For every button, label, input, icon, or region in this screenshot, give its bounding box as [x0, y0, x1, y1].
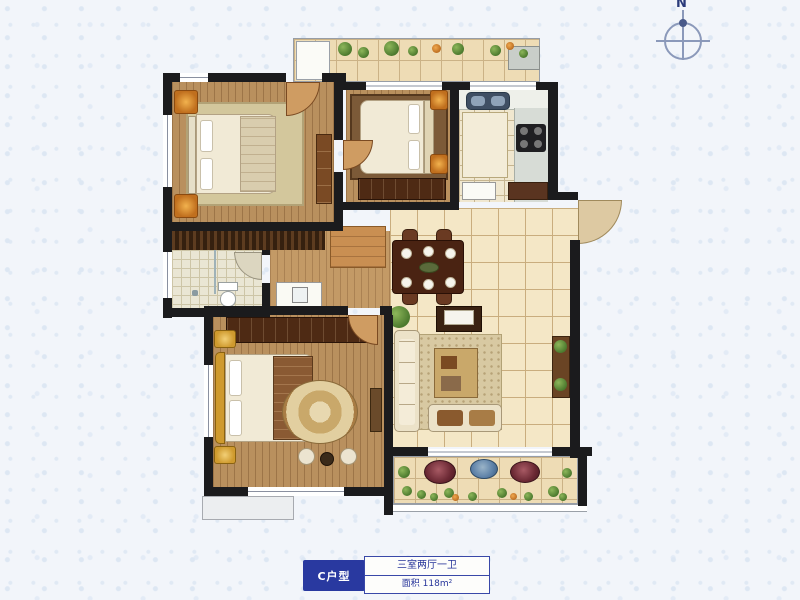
shower-screen: [214, 250, 216, 294]
sofa-pillow: [437, 410, 463, 426]
wall-segment: [204, 487, 248, 496]
wall-segment: [322, 73, 346, 82]
closet: [172, 231, 325, 250]
unit-area-text: 面积 118m²: [365, 576, 489, 593]
nightstand: [430, 154, 448, 174]
burner: [534, 127, 542, 135]
sofa-pillow: [469, 410, 495, 426]
nightstand: [174, 194, 198, 218]
tv-screen: [444, 310, 474, 325]
plant: [497, 488, 507, 498]
wall-segment: [548, 192, 578, 200]
window: [248, 487, 344, 496]
pillow: [408, 140, 420, 170]
window: [204, 365, 213, 437]
nightstand: [214, 446, 236, 464]
wardrobe: [316, 134, 332, 204]
plant: [562, 468, 572, 478]
hall-cabinet: [330, 226, 386, 268]
plant: [452, 43, 464, 55]
pillow: [229, 360, 242, 396]
wall-segment: [450, 82, 459, 210]
toilet-tank: [218, 282, 238, 291]
plant: [554, 340, 567, 353]
compass-north-label: N: [676, 0, 692, 12]
wall-segment: [204, 306, 348, 315]
nightstand: [174, 90, 198, 114]
blanket: [240, 116, 276, 192]
round-rug: [282, 380, 358, 444]
wardrobe: [358, 178, 446, 200]
ac-platform: [202, 496, 294, 520]
flower-pot: [510, 461, 540, 483]
kitchen-island: [462, 112, 508, 178]
flower: [452, 494, 459, 501]
compass-crosshair: [656, 40, 710, 42]
wall-segment: [334, 82, 343, 140]
plant: [402, 486, 412, 496]
flower: [506, 42, 514, 50]
compass-dot: [679, 19, 687, 27]
burner: [520, 127, 528, 135]
wall-segment: [163, 222, 340, 231]
flower-pot: [424, 460, 456, 484]
flower: [432, 44, 441, 53]
leisure-chair: [340, 448, 357, 465]
plant: [408, 46, 418, 56]
wall-segment: [163, 187, 172, 252]
dresser: [370, 388, 382, 432]
unit-type-label: C户型: [317, 568, 350, 584]
pillow: [229, 400, 242, 436]
sofa: [394, 330, 420, 432]
floor-drain: [192, 290, 198, 296]
plant: [490, 45, 501, 56]
plant: [384, 41, 399, 56]
tea-table: [320, 452, 334, 466]
flower-pot: [470, 459, 498, 479]
nightstand: [430, 90, 448, 110]
window: [163, 115, 172, 187]
wall-segment: [262, 283, 270, 308]
wall-segment: [341, 82, 366, 90]
wall-segment: [208, 73, 286, 82]
wall-segment: [578, 456, 587, 506]
loveseat: [428, 404, 502, 432]
wall-segment: [388, 447, 428, 456]
plant: [338, 42, 352, 56]
plant: [430, 493, 438, 501]
fridge: [462, 182, 496, 200]
pillow: [408, 104, 420, 134]
unit-layout-text: 三室两厅一卫: [365, 557, 489, 576]
burner: [534, 140, 542, 148]
window: [366, 82, 442, 90]
window: [163, 252, 172, 298]
shoe-cabinet: [508, 182, 548, 200]
table-item: [441, 376, 461, 391]
plant: [417, 490, 426, 499]
plant: [524, 492, 533, 501]
flower: [510, 493, 517, 500]
table-item: [441, 356, 457, 369]
pillow: [200, 120, 213, 152]
plant: [468, 492, 477, 501]
wall-segment: [380, 306, 392, 315]
wall-segment: [334, 202, 459, 210]
plant: [554, 378, 567, 391]
wall-segment: [384, 315, 393, 515]
plant: [559, 493, 567, 501]
balcony-railing: [388, 504, 587, 512]
window: [428, 449, 552, 455]
plant: [398, 466, 410, 478]
wall-segment: [570, 240, 580, 458]
wall-segment: [552, 447, 592, 456]
plant: [358, 47, 369, 58]
wall-segment: [204, 306, 213, 365]
unit-type-badge: C户型: [303, 560, 365, 591]
wall-segment: [548, 82, 558, 196]
floorplan-image: N C户型 三室两厅一卫 面积 118m²: [0, 0, 800, 600]
bed-headboard: [215, 352, 225, 444]
washbasin: [292, 287, 308, 303]
coffee-table: [434, 348, 478, 398]
leisure-chair: [298, 448, 315, 465]
sofa-cushions: [399, 339, 415, 425]
plant: [548, 486, 559, 497]
wall-segment: [163, 73, 172, 115]
wall-segment: [262, 250, 270, 255]
sink-basin: [491, 96, 505, 106]
compass-rose: N: [650, 0, 720, 66]
unit-info-card: 三室两厅一卫 面积 118m²: [364, 556, 490, 594]
window: [180, 73, 208, 82]
burner: [520, 140, 528, 148]
entry-door-swing: [578, 200, 622, 244]
nightstand: [214, 330, 236, 348]
plant: [519, 49, 528, 58]
bed-headboard: [188, 116, 196, 194]
sink-basin: [471, 96, 485, 106]
pillow: [200, 158, 213, 190]
dining-table: [392, 240, 464, 294]
toilet: [220, 291, 236, 307]
window: [470, 82, 536, 90]
serving-dish: [419, 262, 439, 273]
